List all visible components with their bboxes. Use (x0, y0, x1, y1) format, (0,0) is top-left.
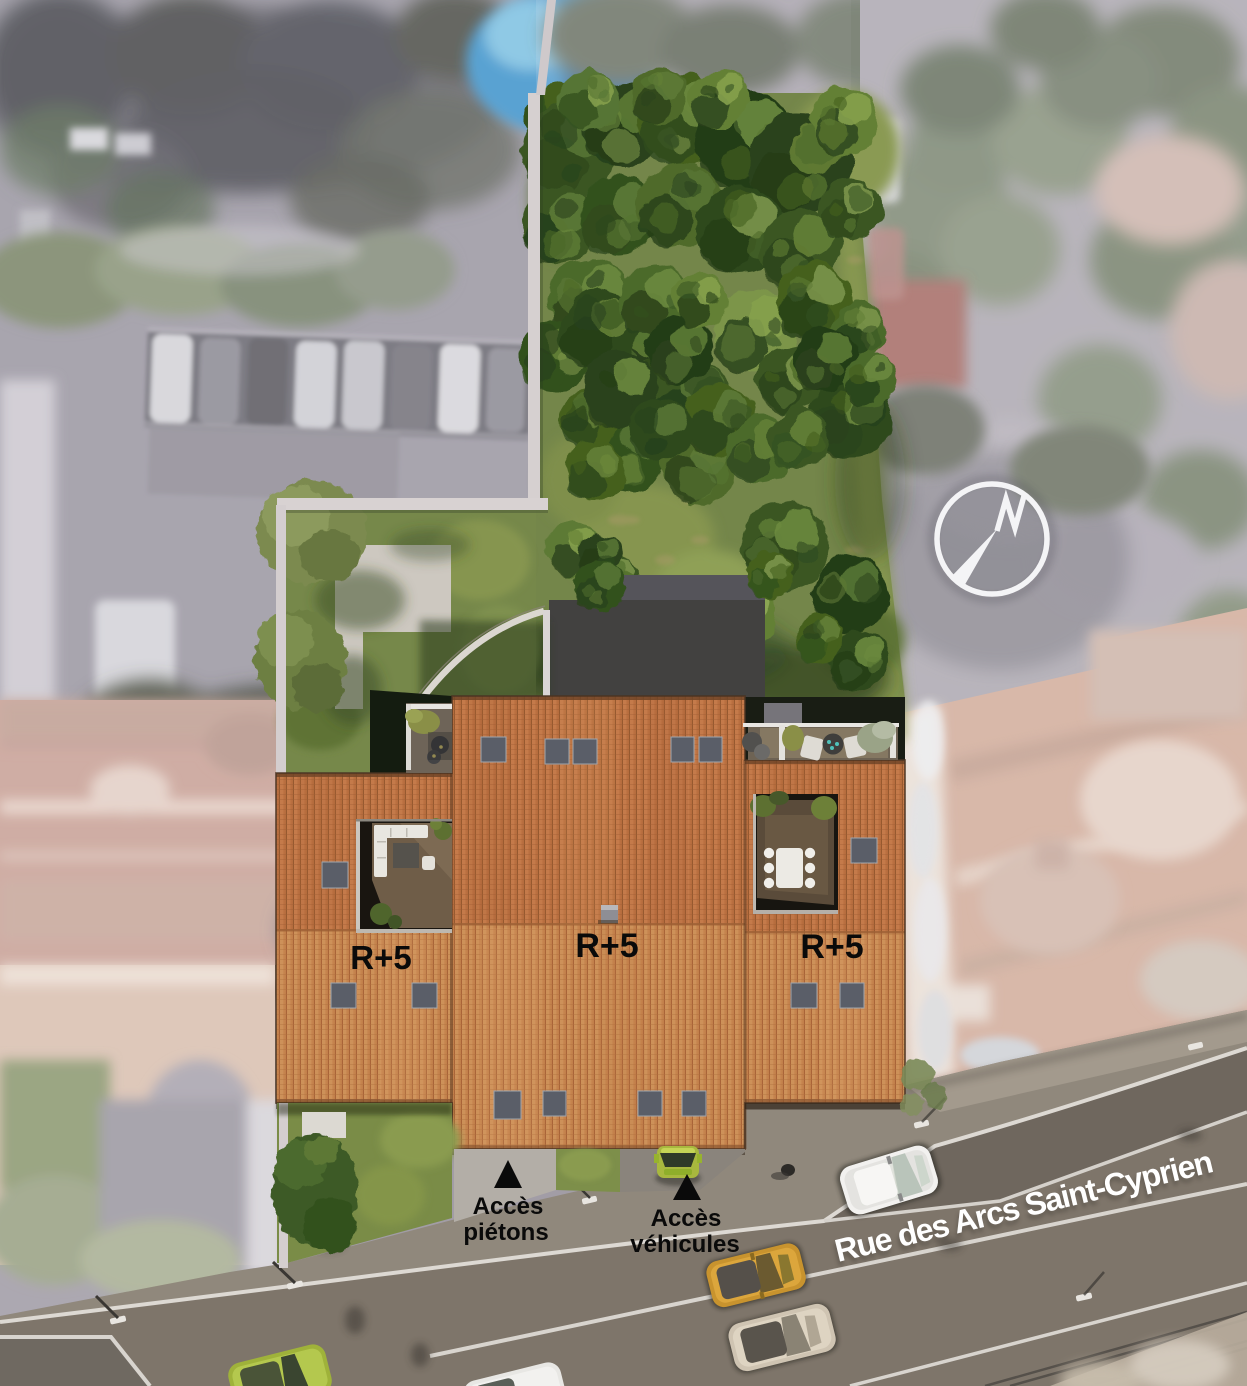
svg-text:Accès: Accès (473, 1193, 544, 1220)
svg-text:R+5: R+5 (575, 927, 638, 965)
svg-text:piétons: piétons (463, 1219, 548, 1246)
svg-text:véhicules: véhicules (630, 1231, 739, 1258)
svg-text:R+5: R+5 (350, 939, 411, 976)
svg-text:Accès: Accès (651, 1205, 722, 1232)
svg-text:R+5: R+5 (800, 928, 863, 966)
